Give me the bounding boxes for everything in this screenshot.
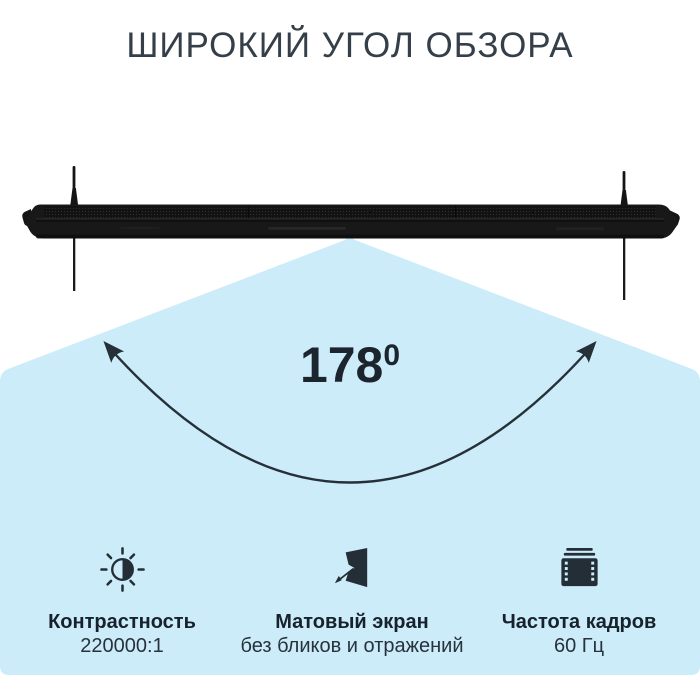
contrast-icon [99, 546, 146, 593]
infographic-canvas: ШИРОКИЙ УГОЛ ОБЗОРА 1780 Контрастность [0, 0, 700, 700]
feature-list: Контрастность 220000:1 Матовый экран без… [0, 0, 700, 700]
feature-value: 60 Гц [444, 634, 700, 659]
frame-rate-icon [556, 546, 603, 593]
feature-frame-rate: Частота кадров 60 Гц [444, 546, 700, 659]
feature-label: Частота кадров [444, 611, 700, 634]
matte-screen-icon [329, 546, 376, 593]
